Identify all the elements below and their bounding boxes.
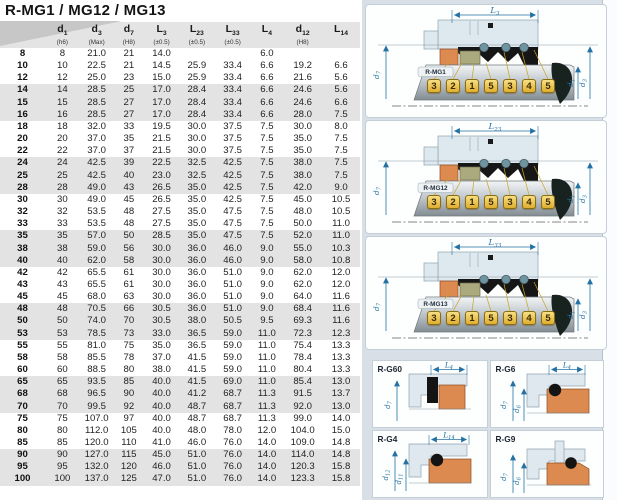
column-header: d12(H8) [283, 22, 322, 48]
dimension-table-section: R-MG1 / MG12 / MG13 d1(h6)d3(Max)d7(H8)L… [0, 0, 362, 500]
d3-dimension: d3 [578, 47, 590, 99]
seal-cross-section-drawing: R-MG13 L33 d7 d1 d3 [366, 237, 604, 347]
table-body: 8821.02114.06.0101022.52114.525.933.46.6… [0, 48, 360, 486]
spring-coil [480, 275, 489, 284]
face-ring [460, 51, 480, 64]
table-row: 181832.03319.530.037.57.530.08.0 [0, 121, 360, 133]
position-number-box: 3 [427, 195, 441, 209]
seal-diagram-rmg12: R-MG12 L23 d7 d1 d3 3215345 [365, 120, 607, 234]
table-row: 141428.52517.028.433.46.624.65.6 [0, 84, 360, 96]
seal-cross-section-drawing: R-MG1 L3 d7 d1 d3 [366, 5, 604, 115]
position-number-box: 3 [503, 195, 517, 209]
model-name-label: R-MG12 [423, 185, 448, 192]
housing-stud [555, 441, 564, 463]
position-number-box: 4 [522, 311, 536, 325]
position-numbers: 3215345 [427, 195, 555, 209]
table-row: 7575107.09740.048.768.711.399.014.0 [0, 413, 360, 425]
position-number-box: 2 [446, 195, 460, 209]
spring-coil [502, 159, 511, 168]
panel-name: R-G4 [378, 434, 398, 444]
l4-dimension: L4 [549, 361, 585, 375]
table-row: 100100137.012547.051.076.014.0123.315.8 [0, 473, 360, 485]
d7-dimension: d7 [372, 162, 386, 215]
svg-text:d7: d7 [372, 302, 383, 311]
table-row: 404062.05830.036.046.09.058.010.8 [0, 255, 360, 267]
table-row: 9595132.012046.051.076.014.0120.315.8 [0, 461, 360, 473]
column-header: L3(±0.5) [144, 22, 179, 48]
spring-coil [502, 43, 511, 52]
table-row: 323253.54827.535.047.57.548.010.5 [0, 206, 360, 218]
position-number-box: 3 [427, 311, 441, 325]
table-row: 151528.52717.028.433.46.624.66.6 [0, 97, 360, 109]
model-name-label: R-MG13 [423, 301, 448, 308]
d6-dimension: d6 [513, 389, 524, 421]
svg-text:d3: d3 [578, 78, 589, 87]
position-number-box: 1 [465, 195, 479, 209]
position-number-box: 5 [484, 195, 498, 209]
l4-dimension: L4 [431, 361, 467, 375]
svg-text:d3: d3 [578, 194, 589, 203]
diagram-section: R-MG1 L3 d7 d1 d3 3215345 [362, 0, 617, 500]
column-header [0, 22, 45, 48]
seat-diagram-rg60: L4 d7 R-G60 [372, 360, 488, 428]
seal-elastomer [427, 377, 438, 403]
position-number-box: 3 [503, 311, 517, 325]
position-number-box: 1 [465, 311, 479, 325]
table-row: 585885.57837.041.559.011.078.413.3 [0, 352, 360, 364]
spring-coil [502, 275, 511, 284]
table-row: 707099.59240.048.768.711.392.013.0 [0, 401, 360, 413]
svg-text:d7: d7 [384, 400, 394, 408]
seat-diagram-rg9: d7 d6 R-G9 [490, 430, 604, 498]
table-row: 8585120.011041.046.076.014.0109.014.8 [0, 437, 360, 449]
d3-dimension: d3 [578, 163, 590, 215]
table-row: 484870.56630.536.051.09.068.411.6 [0, 303, 360, 315]
svg-text:d7: d7 [372, 70, 383, 79]
d7-dimension: d7 [372, 46, 386, 99]
position-numbers: 3215345 [427, 79, 555, 93]
table-row: 353557.05028.535.047.57.552.011.0 [0, 230, 360, 242]
column-header: L23(±0.5) [179, 22, 215, 48]
svg-text:d11: d11 [395, 473, 405, 484]
d11-dimension: d11 [395, 459, 406, 491]
d6-dimension: d6 [513, 463, 524, 493]
position-number-box: 5 [484, 311, 498, 325]
spring-coil [520, 159, 529, 168]
o-ring [431, 454, 443, 466]
svg-text:d6: d6 [513, 404, 523, 412]
face-ring [460, 283, 480, 296]
spring-coil [480, 43, 489, 52]
o-ring [565, 457, 577, 469]
table-row: 282849.04326.535.042.57.542.09.0 [0, 182, 360, 194]
position-number-box: 3 [503, 79, 517, 93]
svg-text:d7: d7 [500, 472, 510, 480]
svg-text:d7: d7 [500, 400, 510, 408]
position-number-box: 5 [541, 195, 555, 209]
table-row: 242442.53922.532.542.57.538.07.5 [0, 157, 360, 169]
table-row: 9090127.011545.051.076.014.0114.014.8 [0, 449, 360, 461]
position-number-box: 5 [541, 79, 555, 93]
d7-dimension: d7 [372, 278, 386, 331]
table-row: 161628.52717.028.433.46.628.07.5 [0, 109, 360, 121]
d3-dimension: d3 [578, 279, 590, 331]
seal-diagram-rmg1: R-MG1 L3 d7 d1 d3 3215345 [365, 4, 607, 118]
page-title: R-MG1 / MG12 / MG13 [5, 2, 166, 19]
dimensions-table: d1(h6)d3(Max)d7(H8)L3(±0.5)L23(±0.5)L33(… [0, 22, 360, 486]
table-header: d1(h6)d3(Max)d7(H8)L3(±0.5)L23(±0.5)L33(… [0, 22, 360, 48]
column-header: d3(Max) [80, 22, 114, 48]
table-row: 8080112.010540.048.078.012.0104.015.0 [0, 425, 360, 437]
column-header: L14 [322, 22, 360, 48]
position-number-box: 2 [446, 79, 460, 93]
seat-diagram-rg6: L4 d7 d6 R-G6 [490, 360, 604, 428]
table-row: 606088.58038.041.559.011.080.413.3 [0, 364, 360, 376]
table-row: 8821.02114.06.0 [0, 48, 360, 60]
table-row: 121225.02315.025.933.46.621.65.6 [0, 72, 360, 84]
catalog-page: R-MG1 / MG12 / MG13 d1(h6)d3(Max)d7(H8)L… [0, 0, 617, 500]
table-row: 656593.58540.041.569.011.085.413.0 [0, 376, 360, 388]
svg-text:d6: d6 [513, 476, 523, 484]
position-number-box: 4 [522, 195, 536, 209]
column-header: d1(h6) [45, 22, 80, 48]
header-row: d1(h6)d3(Max)d7(H8)L3(±0.5)L23(±0.5)L33(… [0, 22, 360, 48]
face-ring [460, 167, 480, 180]
column-header: d7(H8) [114, 22, 145, 48]
seat-ring [439, 385, 465, 409]
table-row: 252542.54023.032.542.57.538.07.5 [0, 170, 360, 182]
spring-coil [520, 275, 529, 284]
panel-name: R-G60 [378, 364, 403, 374]
position-number-box: 5 [484, 79, 498, 93]
table-row: 202037.03521.530.037.57.535.07.5 [0, 133, 360, 145]
table-row: 303049.04526.535.042.57.545.010.5 [0, 194, 360, 206]
d7-dimension: d7 [500, 381, 513, 421]
seal-diagram-rmg13: R-MG13 L33 d7 d1 d3 3215345 [365, 236, 607, 350]
panel-name: R-G9 [496, 434, 516, 444]
svg-text:d7: d7 [372, 186, 383, 195]
table-row: 505074.07030.538.050.59.569.311.6 [0, 315, 360, 327]
table-row: 383859.05630.036.046.09.055.010.3 [0, 243, 360, 255]
position-numbers: 3215345 [427, 311, 555, 325]
d7-dimension: d7 [384, 381, 397, 421]
d12-dimension: d12 [382, 451, 395, 491]
column-header: L33(±0.5) [215, 22, 251, 48]
o-ring [549, 384, 561, 396]
table-row: 535378.57333.036.559.011.072.312.3 [0, 328, 360, 340]
table-row: 686896.59040.041.268.711.391.513.7 [0, 388, 360, 400]
l14-dimension: L14 [429, 431, 469, 445]
position-number-box: 1 [465, 79, 479, 93]
table-row: 434365.56130.036.051.09.062.012.0 [0, 279, 360, 291]
table-row: 101022.52114.525.933.46.619.26.6 [0, 60, 360, 72]
model-name-label: R-MG1 [425, 69, 446, 76]
table-row: 333353.54827.535.047.57.550.011.0 [0, 218, 360, 230]
table-row: 222237.03721.530.037.57.535.07.5 [0, 145, 360, 157]
panel-name: R-G6 [496, 364, 516, 374]
position-number-box: 4 [522, 79, 536, 93]
svg-text:d12: d12 [382, 469, 392, 480]
spring-coil [520, 43, 529, 52]
column-header: L4 [251, 22, 284, 48]
position-number-box: 2 [446, 311, 460, 325]
seal-cross-section-drawing: R-MG12 L23 d7 d1 d3 [366, 121, 604, 231]
table-row: 454568.06330.036.051.09.064.011.6 [0, 291, 360, 303]
position-number-box: 5 [541, 311, 555, 325]
svg-text:d3: d3 [578, 310, 589, 319]
table-row: 424265.56130.036.051.09.062.012.0 [0, 267, 360, 279]
position-number-box: 3 [427, 79, 441, 93]
d7-dimension: d7 [500, 455, 513, 493]
seat-diagram-rg4: L14 d12 d11 R-G4 [372, 430, 488, 498]
spring-coil [480, 159, 489, 168]
table-row: 555581.07535.036.559.011.075.413.3 [0, 340, 360, 352]
